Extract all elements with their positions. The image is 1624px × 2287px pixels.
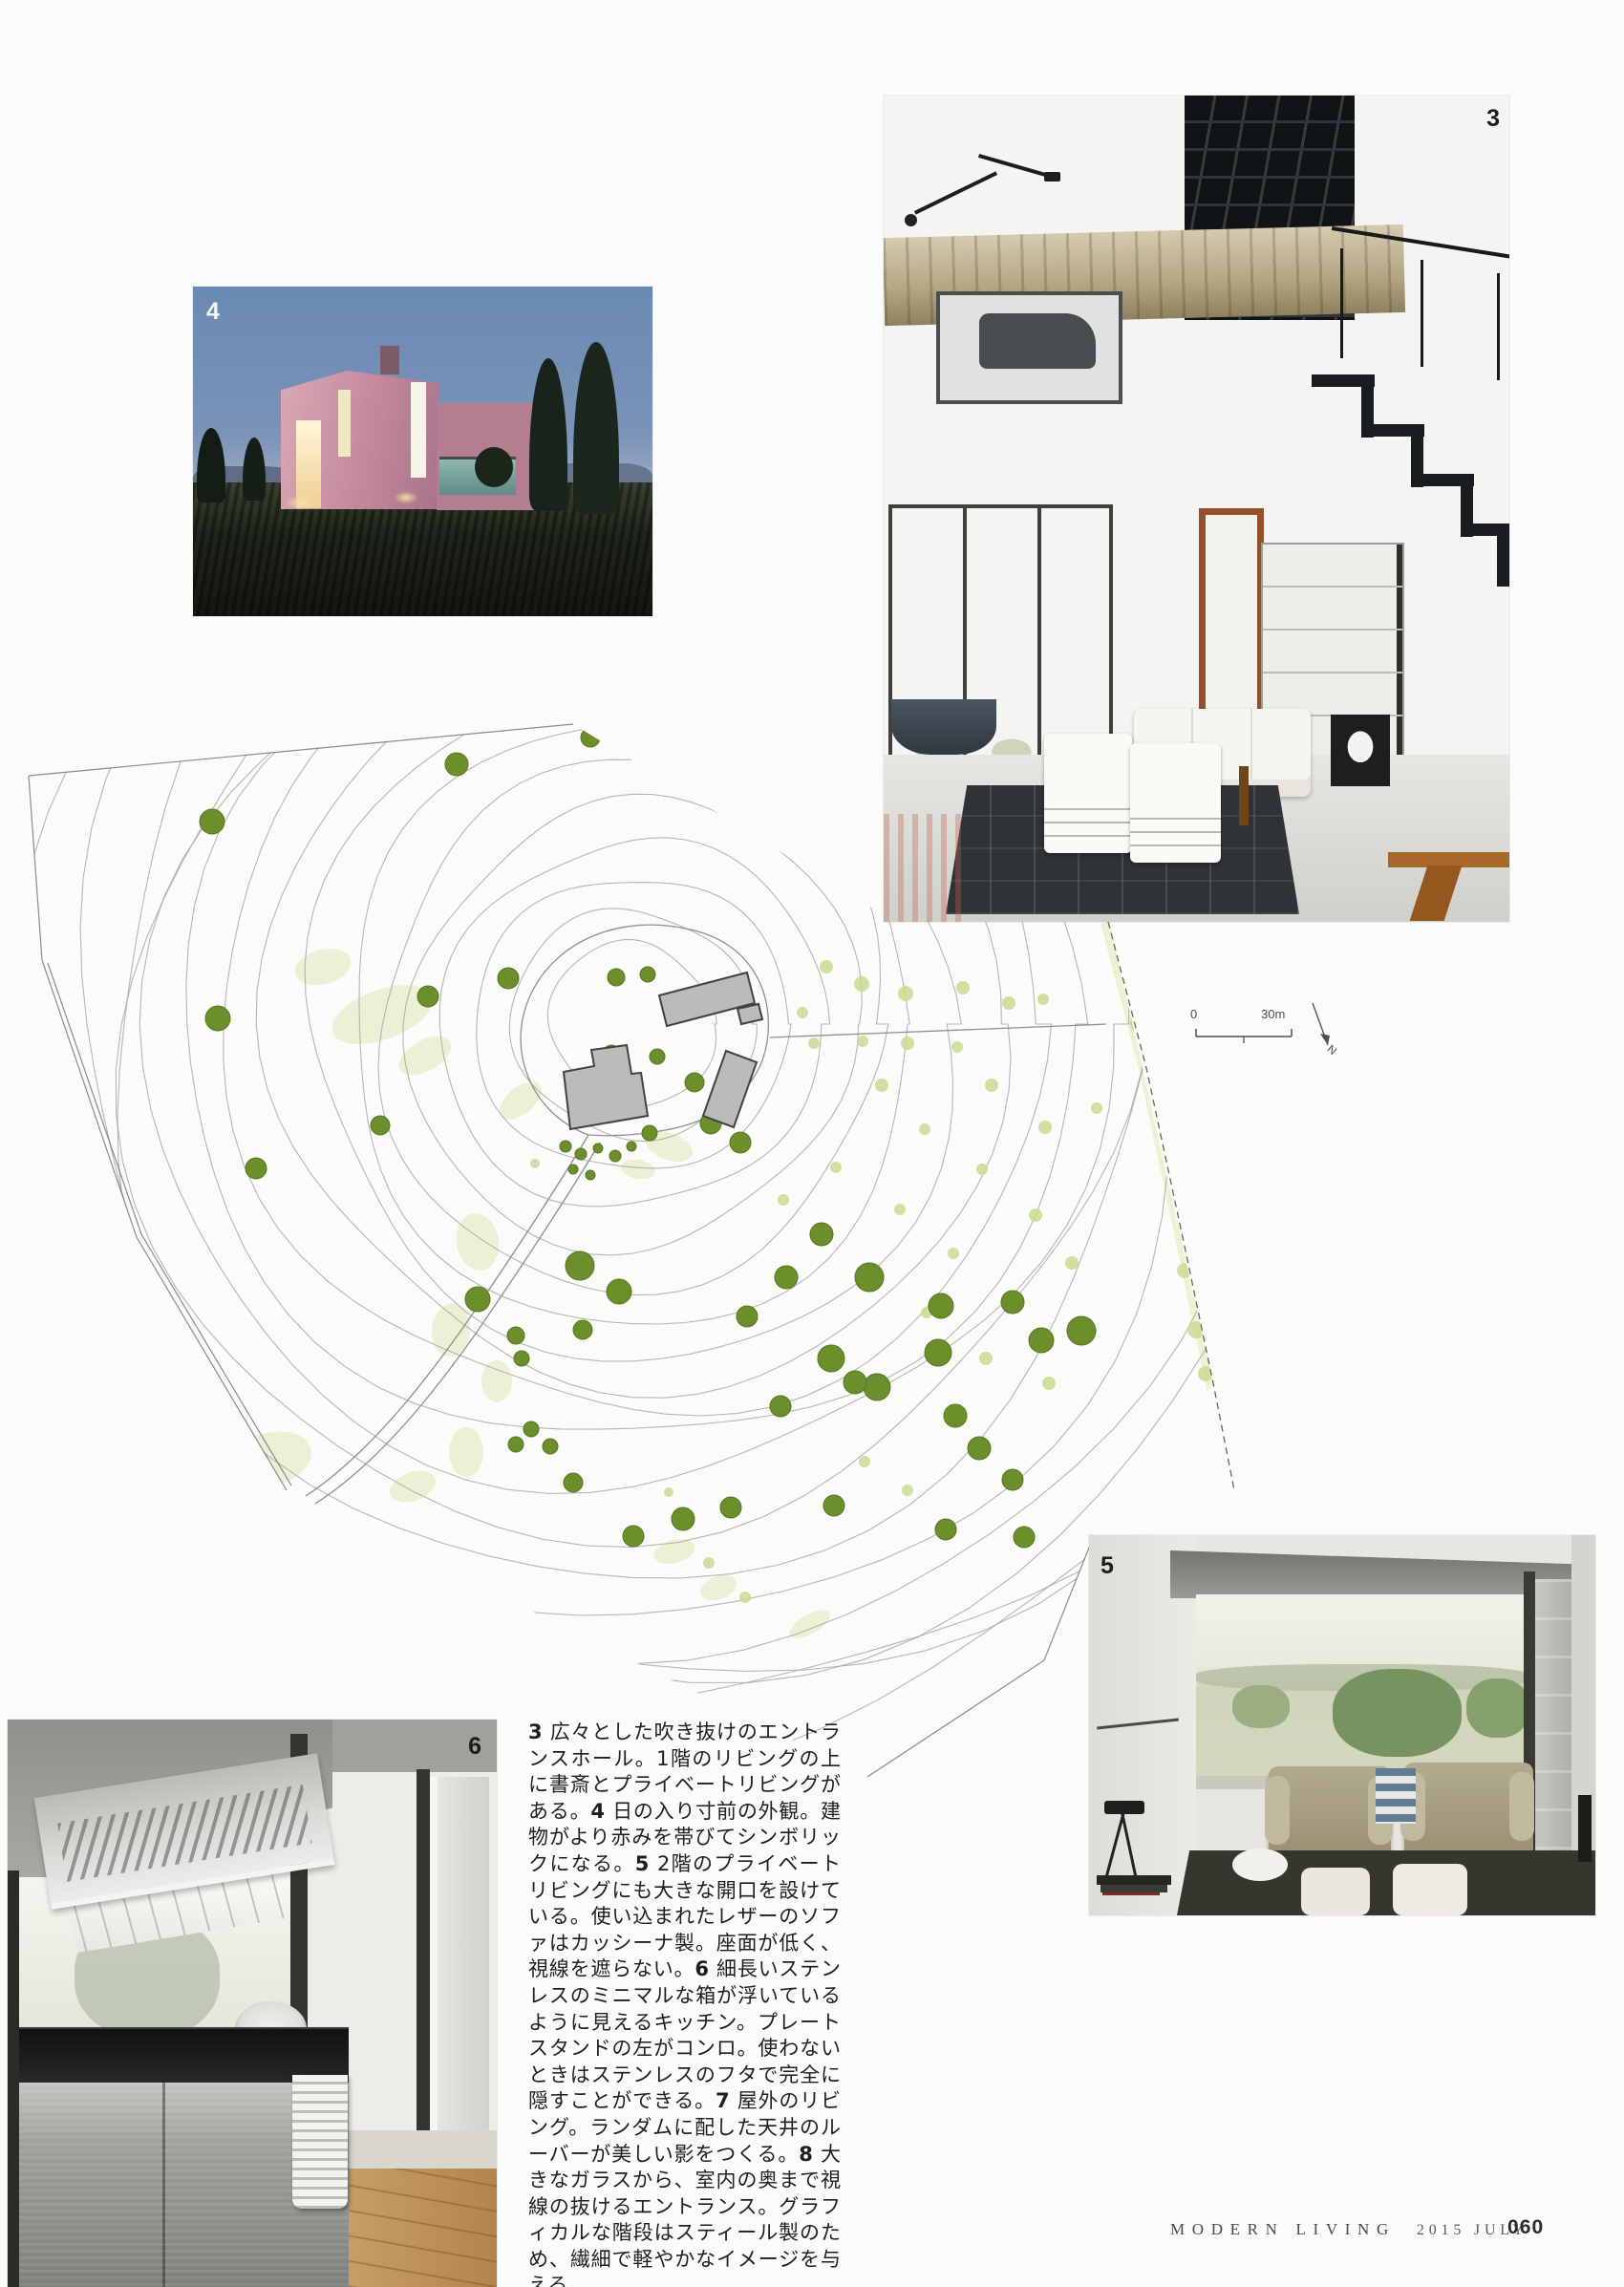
p3-lamp-arm <box>914 171 997 214</box>
p3-railing-post <box>1421 260 1423 367</box>
p5-tree <box>1232 1685 1290 1728</box>
p3-pink-tablecloth <box>884 814 968 922</box>
p3-lamp-base <box>905 214 917 226</box>
p6-towel <box>292 2075 348 2209</box>
p5-round-table <box>1232 1849 1288 1881</box>
p5-ottoman <box>1301 1868 1370 1915</box>
scale-30m-label: 30m <box>1261 1007 1285 1021</box>
p5-armchair-arm <box>1509 1772 1534 1841</box>
p3-lamp-head <box>1044 172 1060 182</box>
p3-wood-stool <box>1220 766 1268 825</box>
p5-books <box>1100 1885 1167 1892</box>
p3-railing-post <box>1340 248 1343 358</box>
photo-kitchen: 6 <box>8 1720 497 2287</box>
p5-striped-cushion <box>1376 1768 1416 1824</box>
p5-ottoman <box>1393 1864 1467 1915</box>
p5-speaker <box>1578 1795 1592 1862</box>
p3-white-chair <box>1044 734 1132 853</box>
p5-sliding-door-glass <box>1535 1579 1571 1870</box>
p5-books <box>1097 1875 1171 1885</box>
photo-exterior-dusk: 4 <box>193 287 652 616</box>
p3-circle-artwork <box>1331 715 1390 786</box>
p3-stair-step <box>1497 524 1509 587</box>
p4-light-glow <box>285 495 317 510</box>
photo3-number-label: 3 <box>1486 107 1500 131</box>
footer-magazine: MODERN LIVING <box>1170 2220 1396 2239</box>
footer-page-number: 060 <box>1507 2216 1544 2239</box>
p4-cypress-tree <box>197 428 225 502</box>
p4-chimney <box>380 346 399 374</box>
p3-white-chair <box>1130 743 1221 863</box>
photo5-number-label: 5 <box>1100 1554 1114 1578</box>
p5-tree <box>1333 1669 1462 1757</box>
p5-projector <box>1104 1801 1144 1814</box>
footer: MODERN LIVING 2015 JULY <box>1170 2220 1528 2239</box>
magazine-page: 0 30m N 3 <box>0 0 1624 2287</box>
p3-desk-chair <box>979 313 1096 369</box>
p5-armchair-arm <box>1265 1776 1290 1845</box>
caption-text: 3 広々とした吹き抜けのエントランスホール。1階のリビングの上に書斎とプライベー… <box>528 1720 841 2287</box>
p4-lit-window <box>411 382 426 478</box>
photo6-number-label: 6 <box>468 1735 481 1759</box>
p5-tree <box>1466 1678 1529 1738</box>
p4-cypress-tree <box>573 342 619 514</box>
p4-light-glow <box>394 491 418 504</box>
p6-window-frame <box>8 1870 19 2287</box>
p5-books <box>1102 1892 1160 1895</box>
p6-wood-floor <box>348 2169 497 2287</box>
p4-lit-window <box>338 390 351 457</box>
p4-bush <box>475 447 513 487</box>
scale-zero-label: 0 <box>1190 1007 1197 1021</box>
photo-entrance-hall: 3 <box>884 96 1509 922</box>
photo-private-living: 5 <box>1089 1535 1595 1915</box>
p4-cypress-tree <box>243 438 266 501</box>
p4-cypress-tree <box>529 358 567 511</box>
p6-hood-grille <box>57 1785 311 1882</box>
photo4-number-label: 4 <box>206 300 220 324</box>
p3-bathtub <box>891 699 996 755</box>
p3-railing-post <box>1497 273 1500 380</box>
